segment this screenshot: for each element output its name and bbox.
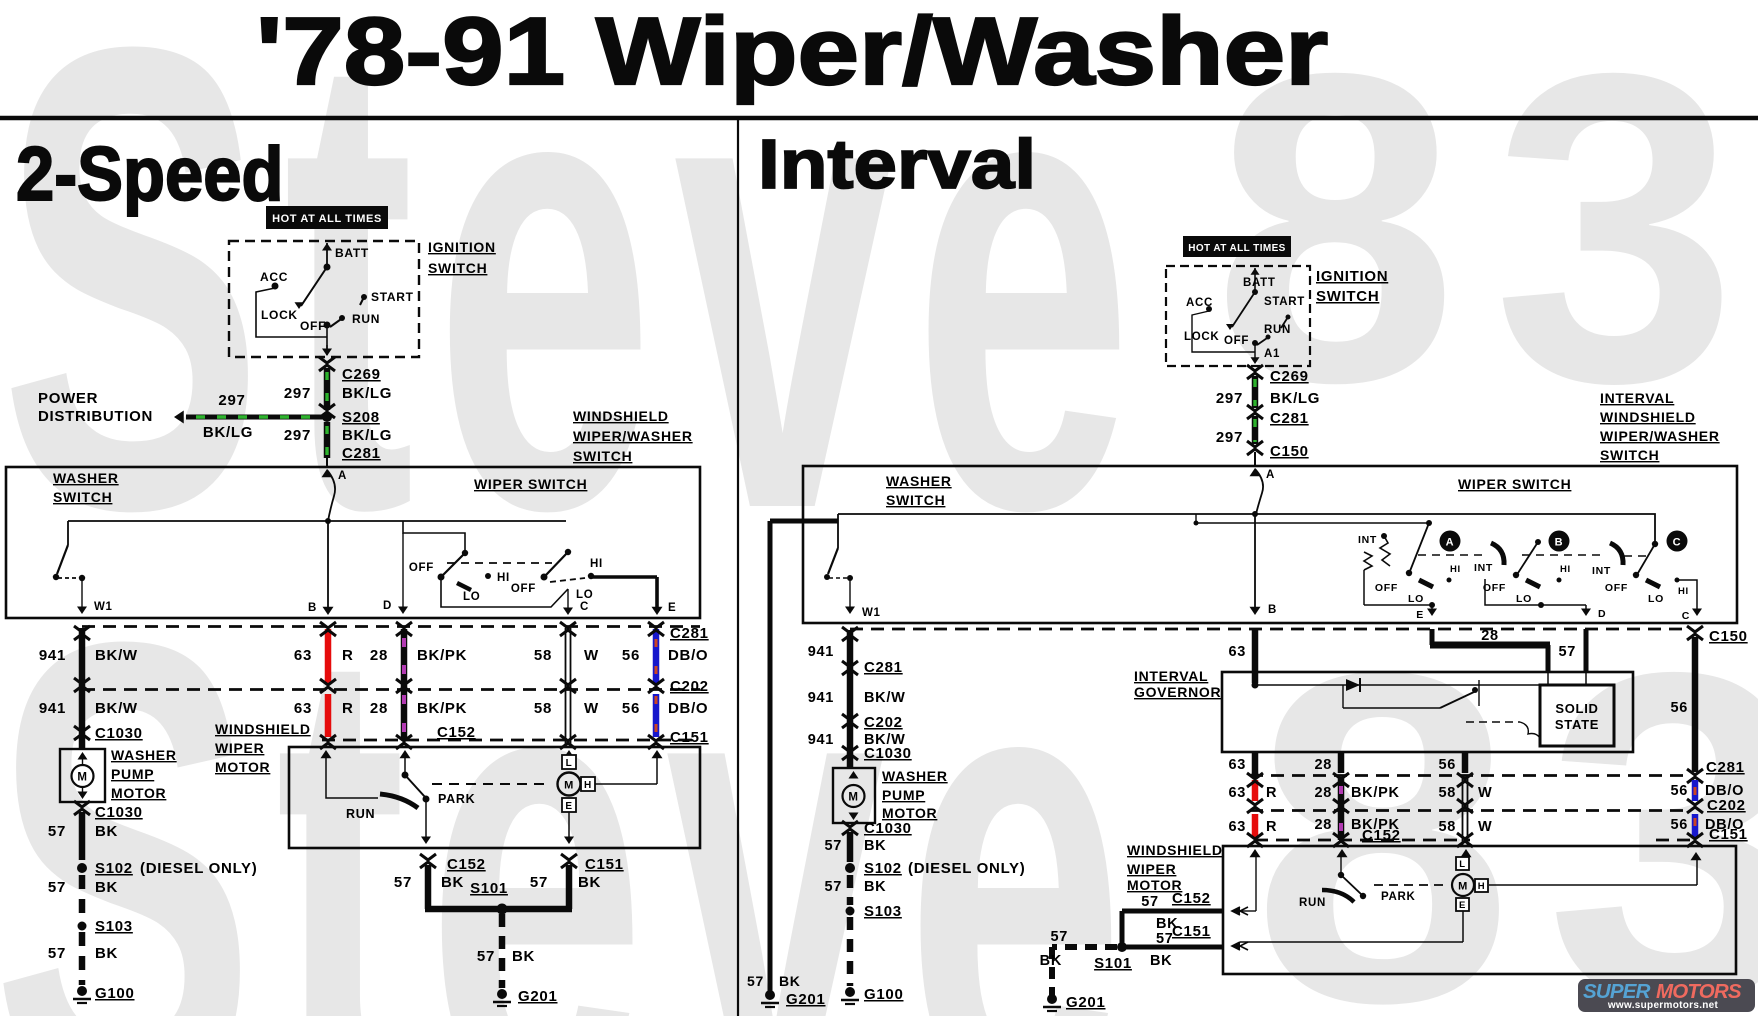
svg-text:297: 297: [1216, 390, 1243, 407]
svg-text:WASHER: WASHER: [53, 470, 119, 486]
svg-text:58: 58: [534, 700, 552, 717]
svg-text:BK/W: BK/W: [864, 690, 905, 706]
svg-text:297: 297: [218, 392, 245, 409]
svg-text:LO: LO: [576, 589, 593, 601]
svg-text:A: A: [1446, 537, 1455, 549]
svg-text:START: START: [1264, 296, 1305, 308]
svg-text:RUN: RUN: [346, 807, 375, 821]
svg-text:28: 28: [370, 647, 388, 664]
svg-text:C1030: C1030: [864, 745, 912, 762]
svg-text:START: START: [371, 290, 414, 304]
svg-text:C1030: C1030: [864, 820, 912, 837]
svg-text:C: C: [580, 601, 589, 613]
svg-text:297: 297: [1216, 429, 1243, 446]
svg-text:S102: S102: [95, 860, 133, 877]
svg-text:H: H: [1478, 881, 1486, 892]
svg-text:G201: G201: [1066, 994, 1106, 1011]
svg-text:MOTOR: MOTOR: [882, 805, 937, 821]
svg-text:WINDSHIELD: WINDSHIELD: [1600, 409, 1696, 425]
svg-text:BK/W: BK/W: [95, 647, 138, 664]
svg-text:HI: HI: [1678, 586, 1689, 597]
svg-text:BK: BK: [95, 945, 118, 962]
svg-text:56: 56: [1670, 783, 1688, 799]
svg-text:C202: C202: [864, 714, 903, 731]
svg-text:OFF: OFF: [409, 562, 434, 574]
svg-text:C152: C152: [447, 856, 486, 873]
svg-text:BK: BK: [779, 973, 801, 989]
svg-text:HI: HI: [1450, 564, 1461, 575]
svg-text:WINDSHIELD: WINDSHIELD: [1127, 842, 1223, 858]
svg-text:S103: S103: [95, 918, 133, 935]
svg-text:A1: A1: [1264, 348, 1280, 360]
svg-text:S101: S101: [1094, 955, 1132, 972]
svg-text:GOVERNOR: GOVERNOR: [1134, 684, 1221, 700]
svg-text:BK/LG: BK/LG: [342, 427, 392, 444]
svg-text:W1: W1: [94, 601, 113, 613]
svg-text:63: 63: [294, 700, 312, 717]
svg-text:SWITCH: SWITCH: [428, 260, 487, 276]
svg-text:L: L: [1459, 859, 1466, 870]
svg-text:LO: LO: [1516, 593, 1532, 605]
svg-text:STATE: STATE: [1555, 717, 1599, 732]
svg-text:BK: BK: [512, 948, 535, 965]
svg-text:LOCK: LOCK: [1184, 331, 1219, 343]
svg-text:HI: HI: [1560, 564, 1571, 575]
svg-text:ACC: ACC: [1186, 297, 1213, 309]
svg-text:C151: C151: [670, 729, 709, 746]
svg-text:BATT: BATT: [335, 246, 369, 260]
svg-text:G100: G100: [95, 985, 135, 1002]
svg-text:C281: C281: [1706, 759, 1745, 776]
svg-text:RUN: RUN: [1299, 897, 1326, 909]
svg-text:57: 57: [747, 973, 764, 989]
svg-text:BK: BK: [95, 879, 118, 896]
svg-text:R: R: [1266, 785, 1277, 801]
svg-text:www.supermotors.net: www.supermotors.net: [1607, 1000, 1719, 1011]
svg-text:57: 57: [824, 838, 842, 854]
svg-text:28: 28: [1481, 628, 1499, 644]
svg-text:G100: G100: [864, 986, 904, 1003]
svg-text:HOT AT ALL TIMES: HOT AT ALL TIMES: [1188, 243, 1286, 254]
svg-text:OFF: OFF: [1224, 335, 1249, 347]
svg-text:B: B: [1555, 537, 1564, 549]
svg-text:OFF: OFF: [1483, 582, 1506, 594]
svg-text:BK: BK: [441, 874, 464, 891]
svg-text:BK: BK: [1040, 953, 1062, 969]
svg-text:BK: BK: [864, 879, 886, 895]
svg-text:PUMP: PUMP: [882, 787, 925, 803]
svg-text:C150: C150: [1709, 628, 1748, 645]
svg-text:L: L: [566, 758, 573, 769]
svg-text:C281: C281: [342, 445, 381, 462]
svg-text:E: E: [565, 801, 572, 812]
svg-text:S101: S101: [470, 880, 508, 897]
svg-text:297: 297: [284, 427, 311, 444]
svg-text:WIPER: WIPER: [215, 740, 264, 756]
svg-text:SWITCH: SWITCH: [1316, 288, 1379, 305]
svg-text:WASHER: WASHER: [111, 747, 177, 763]
svg-text:G201: G201: [518, 988, 558, 1005]
svg-text:PUMP: PUMP: [111, 766, 154, 782]
svg-text:63: 63: [294, 647, 312, 664]
svg-text:R: R: [342, 700, 354, 717]
svg-text:C152: C152: [1362, 827, 1401, 844]
svg-text:58: 58: [1438, 785, 1456, 801]
svg-text:W: W: [1478, 819, 1492, 835]
svg-text:DISTRIBUTION: DISTRIBUTION: [38, 408, 153, 425]
svg-text:56: 56: [622, 647, 640, 664]
svg-text:63: 63: [1228, 819, 1246, 835]
svg-text:28: 28: [370, 700, 388, 717]
svg-text:57: 57: [1558, 644, 1576, 660]
svg-text:2-Speed: 2-Speed: [16, 132, 284, 217]
svg-text:OFF: OFF: [300, 319, 326, 333]
svg-text:IGNITION: IGNITION: [428, 239, 496, 255]
svg-text:941: 941: [808, 644, 834, 660]
svg-text:HI: HI: [590, 558, 603, 570]
svg-text:58: 58: [1438, 819, 1456, 835]
svg-text:R: R: [342, 647, 354, 664]
svg-text:28: 28: [1314, 817, 1332, 833]
svg-text:57: 57: [477, 948, 495, 965]
svg-text:57: 57: [1156, 931, 1174, 947]
svg-text:M: M: [564, 780, 574, 792]
svg-text:57: 57: [48, 879, 66, 896]
svg-text:BK/PK: BK/PK: [417, 647, 467, 664]
svg-text:D: D: [1598, 608, 1606, 620]
svg-text:C152: C152: [437, 724, 476, 741]
svg-text:OFF: OFF: [1605, 582, 1628, 594]
svg-text:SWITCH: SWITCH: [53, 489, 112, 505]
svg-text:BATT: BATT: [1243, 277, 1276, 289]
svg-text:WIPER SWITCH: WIPER SWITCH: [1458, 476, 1571, 492]
svg-text:297: 297: [284, 385, 311, 402]
svg-text:C151: C151: [1172, 923, 1211, 940]
svg-text:C151: C151: [1709, 826, 1748, 843]
svg-text:C202: C202: [1707, 797, 1746, 814]
svg-text:ACC: ACC: [260, 270, 288, 284]
svg-text:SWITCH: SWITCH: [1600, 447, 1659, 463]
svg-text:56: 56: [622, 700, 640, 717]
svg-text:56: 56: [1670, 700, 1688, 716]
svg-text:57: 57: [1050, 929, 1068, 945]
svg-text:RUN: RUN: [1264, 324, 1291, 336]
svg-text:28: 28: [1314, 757, 1332, 773]
svg-text:S208: S208: [342, 409, 380, 426]
svg-text:C: C: [1682, 610, 1690, 622]
svg-text:C202: C202: [670, 678, 709, 695]
svg-text:A: A: [1266, 469, 1275, 481]
svg-text:M: M: [77, 772, 87, 784]
svg-text:W1: W1: [862, 607, 881, 619]
svg-text:OFF: OFF: [511, 583, 536, 595]
svg-text:MOTOR: MOTOR: [111, 785, 166, 801]
svg-text:56: 56: [1670, 817, 1688, 833]
svg-text:WIPER/WASHER: WIPER/WASHER: [1600, 428, 1720, 444]
svg-text:POWER: POWER: [38, 390, 98, 407]
svg-text:63: 63: [1228, 644, 1246, 660]
svg-text:IGNITION: IGNITION: [1316, 268, 1388, 285]
svg-text:INT: INT: [1474, 562, 1493, 574]
svg-text:LO: LO: [1408, 593, 1424, 605]
svg-text:G201: G201: [786, 991, 826, 1008]
svg-text:R: R: [1266, 819, 1277, 835]
svg-text:HOT AT ALL TIMES: HOT AT ALL TIMES: [272, 213, 382, 225]
svg-text:C269: C269: [342, 366, 381, 383]
svg-text:BK/LG: BK/LG: [1270, 390, 1320, 407]
svg-text:INT: INT: [1358, 534, 1377, 546]
svg-text:PARK: PARK: [438, 792, 475, 806]
svg-text:SWITCH: SWITCH: [573, 448, 632, 464]
svg-text:Interval: Interval: [758, 125, 1036, 203]
svg-text:BK/W: BK/W: [95, 700, 138, 717]
svg-text:C1030: C1030: [95, 804, 143, 821]
svg-text:C1030: C1030: [95, 725, 143, 742]
svg-text:DB/O: DB/O: [668, 647, 708, 664]
svg-text:BK: BK: [1150, 953, 1172, 969]
svg-text:57: 57: [824, 879, 842, 895]
svg-text:LO: LO: [463, 591, 480, 603]
svg-text:57: 57: [48, 823, 66, 840]
svg-text:D: D: [383, 600, 392, 612]
svg-text:63: 63: [1228, 757, 1246, 773]
svg-text:S102: S102: [864, 860, 902, 877]
svg-text:C150: C150: [1270, 443, 1309, 460]
svg-text:E: E: [1459, 900, 1466, 911]
svg-text:(DIESEL ONLY): (DIESEL ONLY): [908, 860, 1025, 877]
svg-text:LOCK: LOCK: [261, 308, 298, 322]
svg-text:57: 57: [530, 874, 548, 891]
svg-text:W: W: [1478, 785, 1492, 801]
svg-text:INTERVAL: INTERVAL: [1134, 668, 1208, 684]
svg-text:941: 941: [39, 700, 66, 717]
svg-text:OFF: OFF: [1375, 582, 1398, 594]
svg-text:W: W: [584, 647, 599, 664]
svg-text:C151: C151: [585, 856, 624, 873]
svg-text:M: M: [848, 792, 858, 804]
svg-text:E: E: [668, 602, 676, 614]
svg-text:58: 58: [534, 647, 552, 664]
svg-text:WASHER: WASHER: [882, 768, 948, 784]
svg-text:BK/LG: BK/LG: [342, 385, 392, 402]
svg-text:H: H: [584, 780, 592, 791]
svg-text:57: 57: [394, 874, 412, 891]
svg-text:WINDSHIELD: WINDSHIELD: [215, 721, 311, 737]
svg-text:BK/PK: BK/PK: [1351, 785, 1400, 801]
svg-text:B: B: [1268, 604, 1277, 616]
svg-text:C152: C152: [1172, 890, 1211, 907]
svg-text:941: 941: [808, 732, 834, 748]
svg-text:56: 56: [1438, 757, 1456, 773]
svg-text:BK: BK: [578, 874, 601, 891]
svg-text:C281: C281: [670, 625, 709, 642]
svg-text:C269: C269: [1270, 368, 1309, 385]
svg-text:DB/O: DB/O: [668, 700, 708, 717]
svg-text:WIPER: WIPER: [1127, 861, 1176, 877]
svg-text:A: A: [338, 470, 347, 482]
svg-text:M: M: [1458, 881, 1468, 893]
svg-text:57: 57: [48, 945, 66, 962]
svg-text:WIPER SWITCH: WIPER SWITCH: [474, 476, 587, 492]
svg-text:57: 57: [1141, 894, 1159, 910]
svg-text:SWITCH: SWITCH: [886, 492, 945, 508]
svg-text:C: C: [1673, 537, 1682, 549]
svg-text:(DIESEL ONLY): (DIESEL ONLY): [140, 860, 257, 877]
svg-text:BK: BK: [95, 823, 118, 840]
svg-text:63: 63: [1228, 785, 1246, 801]
svg-text:BK: BK: [864, 838, 886, 854]
svg-text:S103: S103: [864, 903, 902, 920]
svg-text:C281: C281: [1270, 410, 1309, 427]
svg-text:WINDSHIELD: WINDSHIELD: [573, 408, 669, 424]
svg-text:W: W: [584, 700, 599, 717]
svg-text:WASHER: WASHER: [886, 473, 952, 489]
svg-text:28: 28: [1314, 785, 1332, 801]
svg-text:MOTOR: MOTOR: [215, 759, 270, 775]
svg-text:HI: HI: [497, 572, 510, 584]
svg-text:RUN: RUN: [352, 312, 380, 326]
svg-text:B: B: [308, 602, 317, 614]
svg-text:BK/LG: BK/LG: [203, 424, 253, 441]
svg-text:E: E: [1416, 609, 1424, 621]
svg-text:SOLID: SOLID: [1555, 701, 1598, 716]
svg-text:BK/PK: BK/PK: [417, 700, 467, 717]
svg-text:941: 941: [808, 690, 834, 706]
svg-text:PARK: PARK: [1381, 891, 1416, 903]
svg-text:LO: LO: [1648, 593, 1664, 605]
svg-text:C281: C281: [864, 659, 903, 676]
svg-text:WIPER/WASHER: WIPER/WASHER: [573, 428, 693, 444]
svg-text:941: 941: [39, 647, 66, 664]
svg-text:INT: INT: [1592, 565, 1611, 577]
svg-text:INTERVAL: INTERVAL: [1600, 390, 1674, 406]
svg-text:'78-91 Wiper/Washer: '78-91 Wiper/Washer: [256, 0, 1328, 104]
